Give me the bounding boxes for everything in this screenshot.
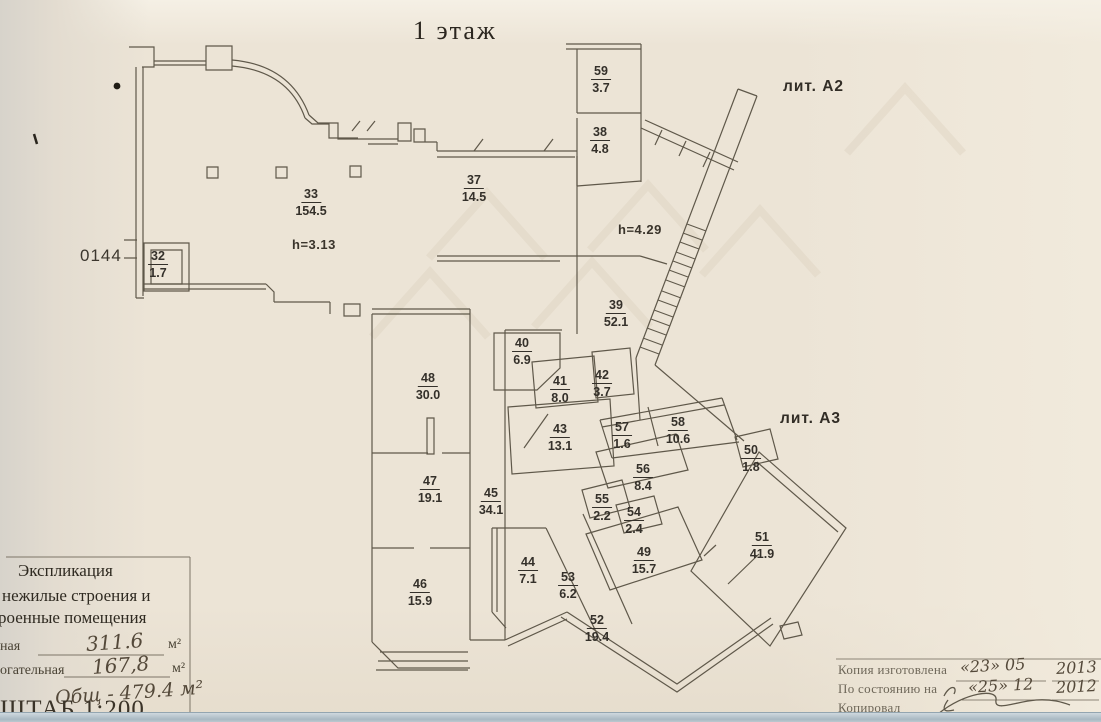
room-number: 53: [558, 570, 578, 586]
building-label-lit-a2: лит. А2: [783, 78, 844, 96]
room-label-59: 593.7: [591, 64, 611, 95]
room-area: 30.0: [416, 387, 440, 402]
room-area: 7.1: [518, 571, 538, 586]
room-area: 13.1: [548, 438, 572, 453]
room-number: 49: [634, 545, 654, 561]
scanned-floor-plan-page: 1 этаж лит. А2 лит. А3 h=3.13 h=4.29 014…: [0, 0, 1101, 722]
room-area: 1.7: [148, 265, 168, 280]
stamp-line1-label: Копия изготовлена: [838, 662, 947, 678]
room-label-53: 536.2: [558, 570, 578, 601]
room-number: 41: [550, 374, 570, 390]
room-area: 15.9: [408, 593, 432, 608]
room-number: 40: [512, 336, 532, 352]
legend-row2-label: огательная: [0, 663, 64, 679]
room-area: 6.2: [558, 586, 578, 601]
room-label-42: 423.7: [592, 368, 612, 399]
room-area: 34.1: [479, 502, 503, 517]
room-label-58: 5810.6: [666, 415, 690, 446]
hole-punch-dot: [34, 83, 120, 144]
room-area: 154.5: [295, 203, 326, 218]
legend-row1-label: ная: [0, 639, 20, 655]
room-area: 3.7: [591, 80, 611, 95]
room-label-48: 4830.0: [416, 371, 440, 402]
room-label-54: 542.4: [624, 505, 644, 536]
room-number: 59: [591, 64, 611, 80]
room-area: 41.9: [750, 546, 774, 561]
building-label-lit-a3: лит. А3: [780, 410, 841, 428]
legend-line3: роенные помещения: [0, 608, 146, 628]
room-label-51: 5141.9: [750, 530, 774, 561]
room-number: 56: [633, 462, 653, 478]
legend-row2-value: 167,8: [91, 651, 150, 679]
ceiling-height-33: h=3.13: [292, 237, 336, 252]
room-area: 19.4: [585, 629, 609, 644]
room-label-43: 4313.1: [548, 422, 572, 453]
room-area: 8.0: [550, 390, 570, 405]
room-area: 14.5: [462, 189, 486, 204]
room-number: 48: [418, 371, 438, 387]
room-label-45: 4534.1: [479, 486, 503, 517]
room-area: 2.4: [624, 521, 644, 536]
watermark-roof-pattern: [372, 88, 963, 337]
room-area: 3.7: [592, 384, 612, 399]
room-number: 50: [741, 443, 761, 459]
room-label-32: 321.7: [148, 249, 168, 280]
room-label-47: 4719.1: [418, 474, 442, 505]
columns: [207, 166, 361, 178]
room-label-33: 33154.5: [295, 187, 326, 218]
room-label-49: 4915.7: [632, 545, 656, 576]
stamp-line1-year: 2013: [1056, 657, 1098, 678]
room-area: 19.1: [418, 490, 442, 505]
room-number: 43: [550, 422, 570, 438]
room-area: 4.8: [590, 141, 610, 156]
page-title: 1 этаж: [413, 16, 497, 46]
room-number: 32: [148, 249, 168, 265]
room-label-41: 418.0: [550, 374, 570, 405]
room-area: 15.7: [632, 561, 656, 576]
room-label-38: 384.8: [590, 125, 610, 156]
room-number: 33: [301, 187, 321, 203]
room-label-46: 4615.9: [408, 577, 432, 608]
stamp-line1-date: «23» 05: [960, 654, 1026, 676]
room-label-39: 3952.1: [604, 298, 628, 329]
room-number: 45: [481, 486, 501, 502]
stamp-line2-label: По состоянию на: [838, 681, 937, 697]
room-number: 54: [624, 505, 644, 521]
room-number: 57: [612, 420, 632, 436]
legend-row1-unit: м²: [168, 637, 181, 653]
room-label-50: 501.8: [741, 443, 761, 474]
room-number: 46: [410, 577, 430, 593]
room-area: 52.1: [604, 314, 628, 329]
legend-line2: нежилые строения и: [2, 586, 150, 606]
room-area: 10.6: [666, 431, 690, 446]
room-area: 1.6: [612, 436, 632, 451]
room-number: 42: [592, 368, 612, 384]
inventory-number: 0144: [80, 246, 122, 266]
room-label-40: 406.9: [512, 336, 532, 367]
room-area: 1.8: [741, 459, 761, 474]
legend-title: Экспликация: [18, 561, 113, 581]
floor-plan-drawing: [0, 0, 1101, 722]
room-label-37: 3714.5: [462, 173, 486, 204]
room-area: 2.2: [592, 508, 612, 523]
room-number: 44: [518, 555, 538, 571]
room-number: 47: [420, 474, 440, 490]
room-number: 38: [590, 125, 610, 141]
bottom-window-edge: [0, 712, 1101, 722]
room-label-52: 5219.4: [585, 613, 609, 644]
stamp-line2-year: 2012: [1056, 676, 1098, 697]
walls: [124, 44, 846, 692]
stamp-line2-date: «25» 12: [968, 674, 1034, 696]
room-label-57: 571.6: [612, 420, 632, 451]
room-label-44: 447.1: [518, 555, 538, 586]
room-number: 37: [464, 173, 484, 189]
room-number: 55: [592, 492, 612, 508]
room-number: 39: [606, 298, 626, 314]
room-number: 58: [668, 415, 688, 431]
room-number: 51: [752, 530, 772, 546]
room-label-56: 568.4: [633, 462, 653, 493]
room-area: 6.9: [512, 352, 532, 367]
room-number: 52: [587, 613, 607, 629]
ceiling-height-39: h=4.29: [618, 222, 662, 237]
room-area: 8.4: [633, 478, 653, 493]
legend-row2-unit: м²: [172, 661, 185, 677]
room-label-55: 552.2: [592, 492, 612, 523]
